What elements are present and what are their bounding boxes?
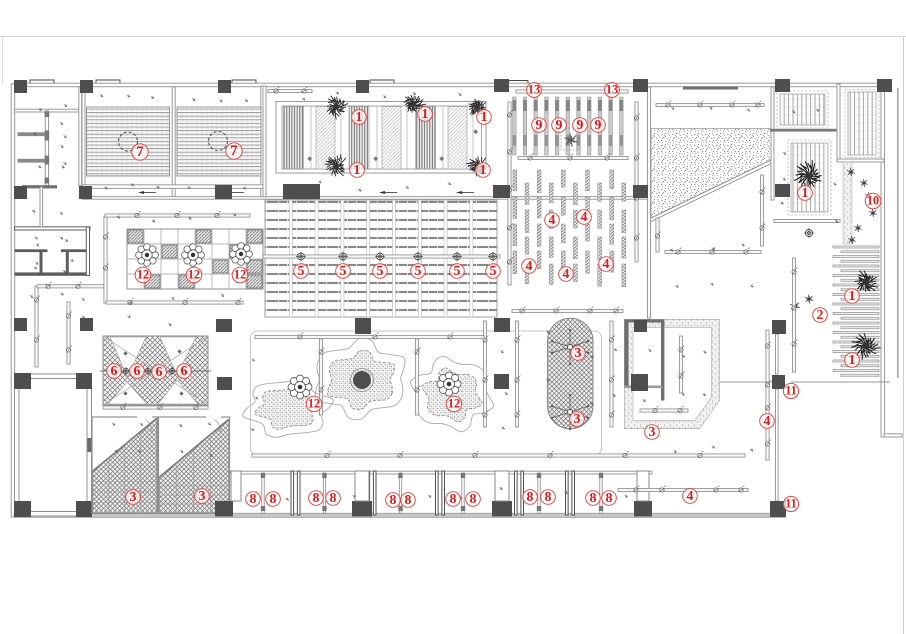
svg-text:4: 4 <box>549 212 556 227</box>
svg-text:7: 7 <box>230 143 238 159</box>
svg-text:5: 5 <box>454 263 461 278</box>
svg-text:2: 2 <box>817 307 824 322</box>
svg-text:11: 11 <box>785 497 797 511</box>
svg-text:6: 6 <box>111 363 118 378</box>
svg-text:11: 11 <box>785 384 797 398</box>
svg-text:9: 9 <box>536 117 543 132</box>
svg-text:5: 5 <box>415 263 422 278</box>
svg-text:8: 8 <box>405 492 412 507</box>
svg-text:9: 9 <box>577 117 584 132</box>
svg-text:8: 8 <box>450 491 457 506</box>
svg-text:13: 13 <box>606 83 618 97</box>
svg-text:8: 8 <box>606 490 613 505</box>
svg-text:12: 12 <box>188 268 200 282</box>
svg-text:1: 1 <box>480 162 487 177</box>
svg-text:8: 8 <box>590 490 597 505</box>
svg-text:5: 5 <box>298 263 305 278</box>
svg-text:6: 6 <box>181 363 188 378</box>
svg-text:7: 7 <box>136 144 144 160</box>
svg-text:3: 3 <box>130 489 137 504</box>
svg-text:13: 13 <box>528 83 540 97</box>
svg-text:8: 8 <box>250 491 257 506</box>
svg-text:3: 3 <box>199 488 206 503</box>
svg-text:1: 1 <box>849 288 856 303</box>
svg-text:8: 8 <box>330 490 337 505</box>
svg-text:3: 3 <box>575 345 582 360</box>
svg-text:4: 4 <box>581 209 588 224</box>
svg-text:8: 8 <box>545 489 552 504</box>
svg-text:3: 3 <box>649 424 656 439</box>
svg-text:10: 10 <box>867 194 879 208</box>
svg-text:1: 1 <box>802 185 809 200</box>
svg-text:12: 12 <box>308 397 320 411</box>
svg-text:9: 9 <box>556 117 563 132</box>
svg-text:4: 4 <box>687 488 694 503</box>
svg-text:4: 4 <box>764 413 771 428</box>
svg-text:5: 5 <box>340 263 347 278</box>
svg-text:1: 1 <box>422 106 429 121</box>
svg-text:1: 1 <box>481 109 488 124</box>
svg-text:12: 12 <box>234 268 246 282</box>
svg-text:6: 6 <box>134 363 141 378</box>
svg-text:4: 4 <box>526 258 533 273</box>
svg-text:6: 6 <box>156 364 163 379</box>
svg-text:12: 12 <box>137 268 149 282</box>
svg-text:5: 5 <box>490 263 497 278</box>
svg-text:8: 8 <box>270 491 277 506</box>
svg-text:8: 8 <box>313 490 320 505</box>
svg-text:8: 8 <box>470 491 477 506</box>
svg-text:9: 9 <box>595 117 602 132</box>
svg-text:5: 5 <box>377 263 384 278</box>
svg-text:4: 4 <box>563 266 570 281</box>
svg-text:8: 8 <box>390 492 397 507</box>
svg-text:12: 12 <box>448 397 460 411</box>
svg-text:3: 3 <box>574 411 581 426</box>
svg-text:1: 1 <box>354 162 361 177</box>
svg-text:8: 8 <box>527 489 534 504</box>
svg-text:1: 1 <box>356 109 363 124</box>
svg-text:1: 1 <box>849 352 856 367</box>
svg-text:4: 4 <box>603 256 610 271</box>
